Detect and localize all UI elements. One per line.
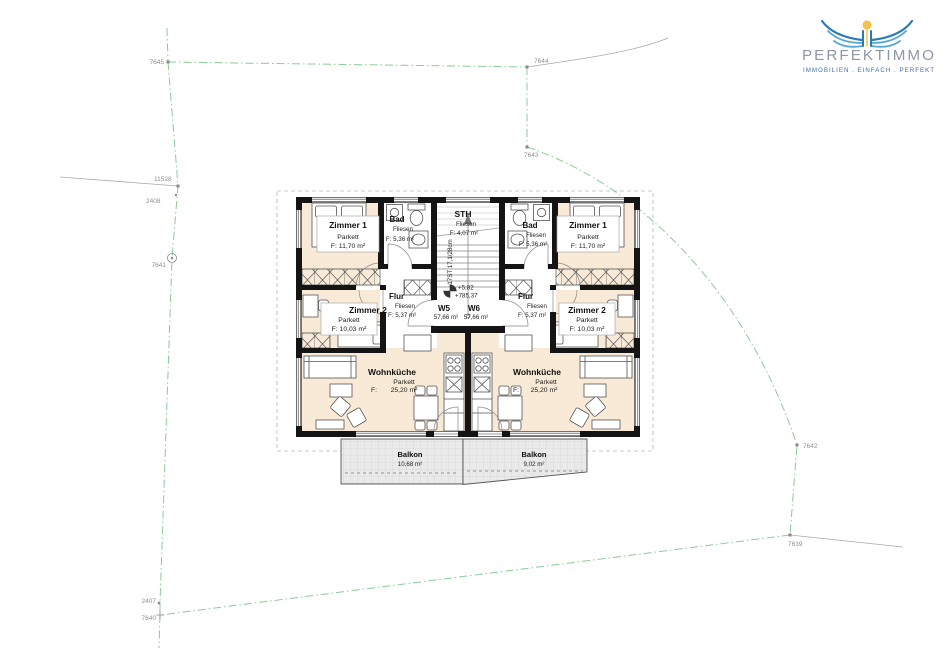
unit-area-w6: 57,66 m² [464,314,488,321]
room-floor-w6-bad: Fliesen [526,232,547,239]
room-label-w6-wohnkueche: Wohnküche [513,367,561,377]
room-area-w6-bad: F: 5,36 m² [519,241,547,248]
room-label-w5-zimmer1: Zimmer 1 [329,220,367,230]
balcony-area-w5: 10,68 m² [398,461,422,468]
room-area-w6-wohnkueche: 25,20 m² [531,387,559,394]
stair-count-note: 17ST 17,1/28cm [447,239,454,284]
parcel-label-7641: 7641 [152,262,167,269]
room-area-w6-flur: F: 5,37 m² [518,312,546,319]
unit-label-w6: W6 [468,304,481,313]
room-area-w5-flur: F: 5,37 m² [388,312,416,319]
room-area-w5-wohnkueche: 25,20 m² [391,387,419,394]
level-relative: +5,82 [458,285,474,292]
room-floor-w5-zimmer1: Parkett [337,234,359,241]
room-label-sth: STH [455,209,472,219]
balconies [341,439,587,485]
room-area-label-w5-wohnkueche: F: [371,387,377,394]
room-label-w5-zimmer2: Zimmer 2 [349,305,387,315]
floor-plan-svg: 7645 7644 7643 7642 7639 7640 2407 2408 … [0,0,950,668]
logo-brand-text: PERFEKTIMMO [802,47,936,64]
room-floor-w5-flur: Fliesen [395,303,416,310]
logo: PERFEKTIMMO IMMOBILIEN . EINFACH . PERFE… [802,21,936,75]
room-floor-w6-wohnkueche: Parkett [535,379,557,386]
parcel-label-7644: 7644 [534,58,549,65]
room-area-w5-zimmer1: F: 11,70 m² [331,243,366,250]
room-floor-w5-wohnkueche: Parkett [393,379,415,386]
parcel-label-7642: 7642 [803,443,818,450]
room-label-w6-zimmer2: Zimmer 2 [568,305,606,315]
room-floor-w5-bad: Fliesen [393,226,414,233]
parcel-label-11528: 11528 [154,176,172,183]
apartment-w6-geometry [466,197,640,437]
room-area-w5-bad: F: 5,36 m² [386,236,414,243]
parcel-label-2407: 2407 [142,598,157,605]
level-absolute: +785,37 [455,293,478,300]
balcony-label-w5: Balkon [397,450,422,459]
parcel-label-7640: 7640 [142,615,157,622]
unit-area-w5: 57,66 m² [434,314,458,321]
room-floor-w6-zimmer2: Parkett [576,317,598,324]
room-area-w6-zimmer2: F: 10,03 m² [570,326,605,333]
room-label-w5-bad: Bad [389,215,404,224]
room-floor-w6-zimmer1: Parkett [577,234,599,241]
logo-tagline-text: IMMOBILIEN . EINFACH . PERFEKT [803,67,935,74]
room-label-w6-bad: Bad [522,221,537,230]
parcel-label-7645: 7645 [150,59,165,66]
room-label-w6-flur: Flur [518,292,533,301]
room-floor-w5-zimmer2: Parkett [338,317,360,324]
room-label-w6-zimmer1: Zimmer 1 [569,220,607,230]
party-wall [465,333,471,437]
balcony-area-w6: 9,02 m² [524,461,545,468]
room-area-label-w6-wohnkueche: F: [513,387,519,394]
room-area-sth: F: 4,07 m² [450,230,478,237]
room-label-w5-flur: Flur [389,292,404,301]
room-area-w5-zimmer2: F: 10,03 m² [332,326,367,333]
floor-plan-page: 7645 7644 7643 7642 7639 7640 2407 2408 … [0,0,950,668]
parcel-label-2408: 2408 [146,198,161,205]
parcel-label-7643: 7643 [524,152,539,159]
room-area-w6-zimmer1: F: 11,70 m² [571,243,606,250]
room-floor-sth: Fliesen [456,221,477,228]
unit-label-w5: W5 [438,304,451,313]
logo-wings-icon [822,21,912,47]
room-floor-w6-flur: Fliesen [527,303,548,310]
parcel-label-7639: 7639 [788,541,803,548]
balcony-label-w6: Balkon [521,450,546,459]
room-label-w5-wohnkueche: Wohnküche [368,367,416,377]
